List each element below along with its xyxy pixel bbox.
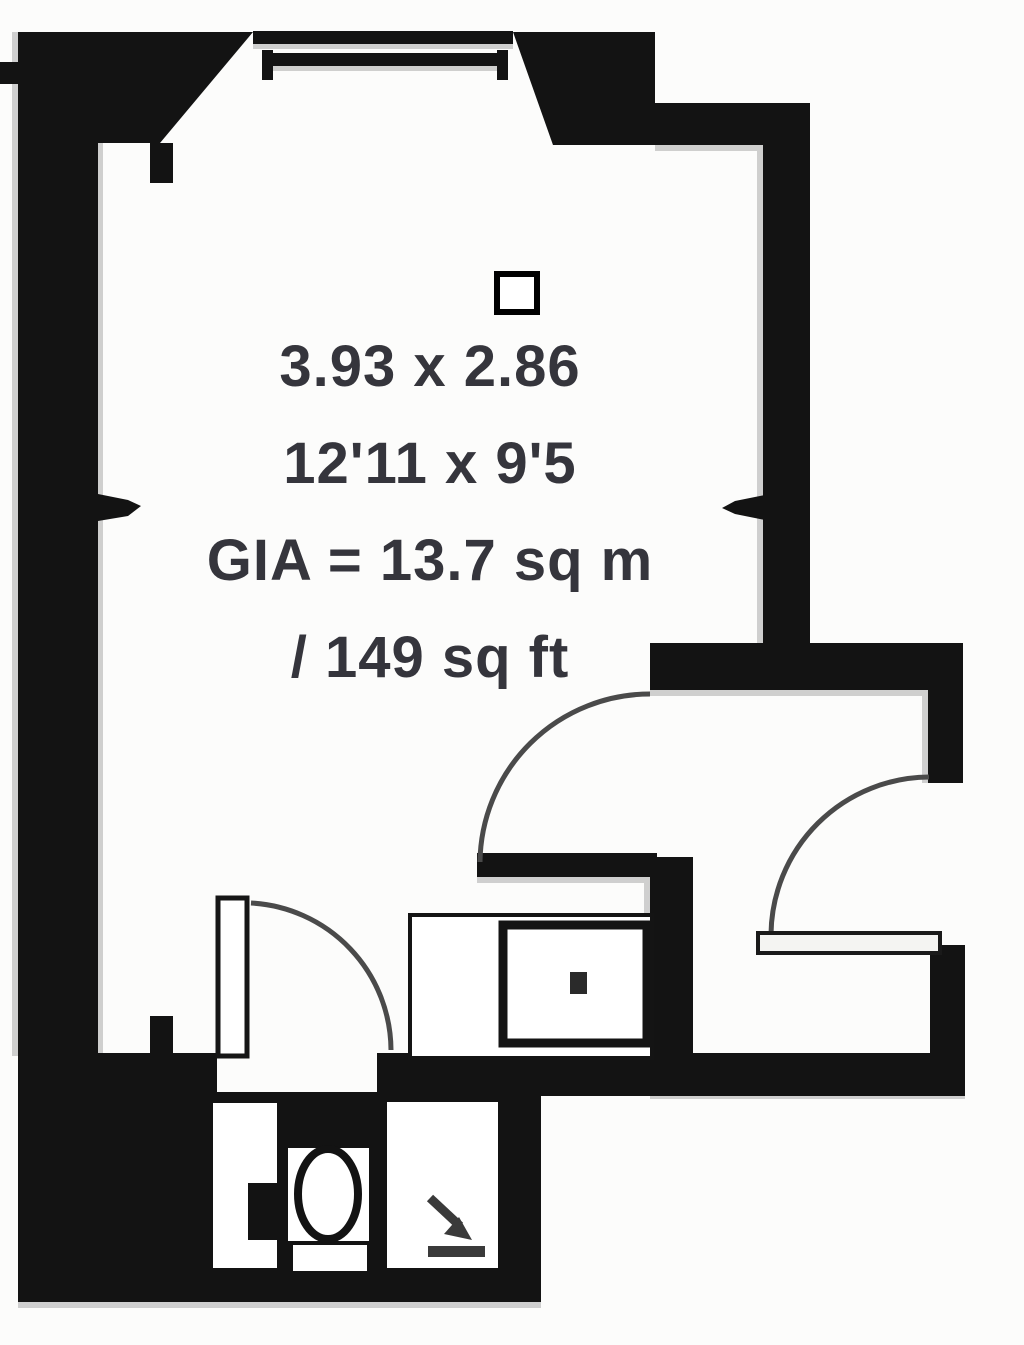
hall-right-wall-upper [928, 687, 963, 783]
studio-hall-divider-wall [477, 853, 657, 877]
window-cap-right [497, 50, 508, 80]
window-inner-line [262, 53, 508, 66]
top-wall-step [655, 103, 810, 145]
window-cap-left [262, 50, 273, 80]
bathroom-door-arc [251, 903, 391, 1050]
tick-top [150, 143, 173, 183]
hall-door-threshold [758, 933, 940, 953]
room-dimensions-metric: 3.93 x 2.86 [60, 318, 800, 415]
room-area-metric: GIA = 13.7 sq m [60, 512, 800, 609]
room-area-imperial: / 149 sq ft [60, 609, 800, 706]
room-dimensions-imperial: 12'11 x 9'5 [60, 415, 800, 512]
floor-plan: 3.93 x 2.86 12'11 x 9'5 GIA = 13.7 sq m … [0, 0, 1024, 1345]
toilet-bowl [298, 1149, 358, 1239]
hall-door-arc [771, 777, 929, 934]
bathroom-door-leaf [218, 898, 247, 1056]
window-outer-line [253, 31, 513, 44]
tick-bottom [150, 1016, 173, 1056]
vanity-drain-dot [570, 972, 587, 994]
shower-tray [387, 1102, 498, 1268]
left-outer-tick [0, 62, 20, 84]
vanity-unit [410, 915, 652, 1058]
bottom-wall-left [18, 1053, 217, 1096]
top-wall-right-block [513, 32, 655, 145]
top-wall-left-block [18, 32, 253, 143]
column-symbol [497, 274, 537, 312]
toilet-cistern [293, 1245, 367, 1271]
room-label: 3.93 x 2.86 12'11 x 9'5 GIA = 13.7 sq m … [60, 318, 800, 706]
studio-entry-door-arc [480, 694, 650, 862]
